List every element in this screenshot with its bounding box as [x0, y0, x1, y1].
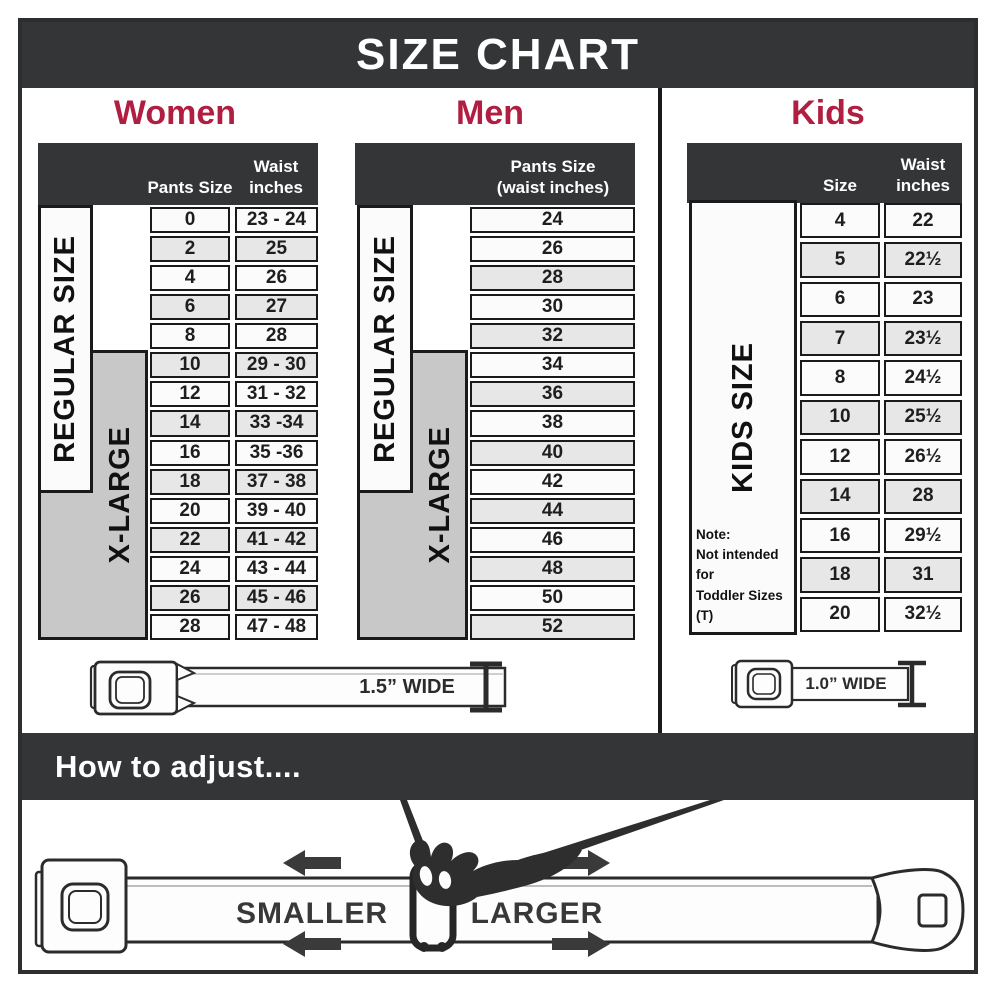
- adult-belt-width-label: 1.5” WIDE: [342, 673, 472, 701]
- women-regular-label: REGULAR SIZE: [49, 235, 82, 463]
- kids-size-column: 45678101214161820: [800, 203, 880, 632]
- kids-size-box: KIDS SIZE Note: Not intended for Toddler…: [689, 200, 797, 635]
- women-size-cell: 8: [150, 323, 230, 349]
- kids-waist-cell: 23: [884, 282, 962, 317]
- kids-size-cell: 14: [800, 479, 880, 514]
- kids-size-cell: 7: [800, 321, 880, 356]
- men-size-cell: 52: [470, 614, 635, 640]
- kids-size-label: KIDS SIZE: [727, 342, 760, 493]
- smaller-label: SMALLER: [212, 897, 412, 933]
- arrow-right-icon: [588, 850, 610, 876]
- men-size-cell: 28: [470, 265, 635, 291]
- men-col-header: Pants Size (waist inches): [470, 143, 636, 205]
- women-size-cell: 22: [150, 527, 230, 553]
- size-chart-page: SIZE CHART Women Men Kids Pants Size Wai…: [0, 0, 1000, 1000]
- men-size-cell: 40: [470, 440, 635, 466]
- women-waist-cell: 27: [235, 294, 318, 320]
- men-size-cell: 48: [470, 556, 635, 582]
- women-size-cell: 10: [150, 352, 230, 378]
- kids-waist-column: 2222½2323½24½25½26½2829½3132½: [884, 203, 962, 632]
- women-size-cell: 26: [150, 585, 230, 611]
- kids-size-cell: 8: [800, 360, 880, 395]
- women-regular-box: REGULAR SIZE: [38, 205, 93, 493]
- kids-waist-cell: 31: [884, 557, 962, 592]
- men-size-cell: 32: [470, 323, 635, 349]
- women-waist-cell: 47 - 48: [235, 614, 318, 640]
- kids-belt-width-label: 1.0” WIDE: [786, 670, 906, 698]
- men-xlarge-label-wrap: X-LARGE: [413, 350, 468, 640]
- women-size-cell: 28: [150, 614, 230, 640]
- belt-tongue-icon: [872, 870, 963, 951]
- women-waist-cell: 31 - 32: [235, 381, 318, 407]
- women-waist-cell: 45 - 46: [235, 585, 318, 611]
- women-xlarge-label-wrap: X-LARGE: [93, 350, 148, 640]
- women-waist-cell: 39 - 40: [235, 498, 318, 524]
- women-waist-cell: 33 -34: [235, 410, 318, 436]
- kids-waist-cell: 32½: [884, 597, 962, 632]
- women-size-column: 0246810121416182022242628: [150, 207, 230, 640]
- women-size-cell: 2: [150, 236, 230, 262]
- women-waist-cell: 25: [235, 236, 318, 262]
- women-waist-cell: 35 -36: [235, 440, 318, 466]
- adjust-belt-illustration: [22, 800, 974, 970]
- women-size-cell: 4: [150, 265, 230, 291]
- men-size-cell: 38: [470, 410, 635, 436]
- men-size-cell: 46: [470, 527, 635, 553]
- women-heading: Women: [75, 94, 275, 134]
- women-size-cell: 16: [150, 440, 230, 466]
- kids-note: Note: Not intended for Toddler Sizes (T): [696, 525, 794, 626]
- kids-waist-cell: 23½: [884, 321, 962, 356]
- title-banner: SIZE CHART: [22, 22, 974, 88]
- kids-size-cell: 5: [800, 242, 880, 277]
- seatbelt-buckle-icon: [36, 860, 126, 952]
- women-waist-cell: 43 - 44: [235, 556, 318, 582]
- kids-col1-header: Size: [800, 143, 880, 203]
- page-title: SIZE CHART: [356, 30, 640, 80]
- men-heading: Men: [390, 94, 590, 134]
- women-size-cell: 24: [150, 556, 230, 582]
- kids-waist-cell: 22½: [884, 242, 962, 277]
- kids-size-cell: 20: [800, 597, 880, 632]
- women-size-cell: 12: [150, 381, 230, 407]
- kids-waist-cell: 26½: [884, 439, 962, 474]
- men-regular-box: REGULAR SIZE: [357, 205, 413, 493]
- kids-size-cell: 12: [800, 439, 880, 474]
- kids-waist-cell: 29½: [884, 518, 962, 553]
- howto-title: How to adjust....: [55, 749, 301, 785]
- kids-size-cell: 16: [800, 518, 880, 553]
- men-size-cell: 34: [470, 352, 635, 378]
- men-size-cell: 50: [470, 585, 635, 611]
- men-size-column: 242628303234363840424446485052: [470, 207, 635, 640]
- howto-banner: How to adjust....: [22, 733, 974, 800]
- women-waist-column: 23 - 242526272829 - 3031 - 3233 -3435 -3…: [235, 207, 318, 640]
- women-size-cell: 0: [150, 207, 230, 233]
- men-size-cell: 26: [470, 236, 635, 262]
- kids-heading: Kids: [728, 94, 928, 134]
- women-size-cell: 14: [150, 410, 230, 436]
- section-divider: [658, 88, 662, 733]
- women-waist-cell: 23 - 24: [235, 207, 318, 233]
- women-size-cell: 18: [150, 469, 230, 495]
- women-waist-cell: 41 - 42: [235, 527, 318, 553]
- women-size-cell: 20: [150, 498, 230, 524]
- women-waist-cell: 29 - 30: [235, 352, 318, 378]
- kids-size-cell: 10: [800, 400, 880, 435]
- women-xlarge-label: X-LARGE: [104, 426, 137, 564]
- arrow-left-icon: [283, 850, 305, 876]
- men-xlarge-label: X-LARGE: [424, 426, 457, 564]
- kids-size-cell: 4: [800, 203, 880, 238]
- kids-waist-cell: 25½: [884, 400, 962, 435]
- women-size-cell: 6: [150, 294, 230, 320]
- kids-size-cell: 6: [800, 282, 880, 317]
- kids-size-cell: 18: [800, 557, 880, 592]
- kids-waist-cell: 22: [884, 203, 962, 238]
- women-waist-cell: 26: [235, 265, 318, 291]
- larger-label: LARGER: [437, 897, 637, 933]
- men-regular-label: REGULAR SIZE: [369, 235, 402, 463]
- kids-col2-header: Waist inches: [884, 143, 962, 203]
- men-size-cell: 36: [470, 381, 635, 407]
- men-size-cell: 44: [470, 498, 635, 524]
- women-waist-cell: 37 - 38: [235, 469, 318, 495]
- women-col2-header: Waist inches: [214, 143, 338, 205]
- women-waist-cell: 28: [235, 323, 318, 349]
- kids-waist-cell: 28: [884, 479, 962, 514]
- men-size-cell: 42: [470, 469, 635, 495]
- men-size-cell: 24: [470, 207, 635, 233]
- men-size-cell: 30: [470, 294, 635, 320]
- chart-frame: SIZE CHART Women Men Kids Pants Size Wai…: [22, 22, 974, 970]
- kids-waist-cell: 24½: [884, 360, 962, 395]
